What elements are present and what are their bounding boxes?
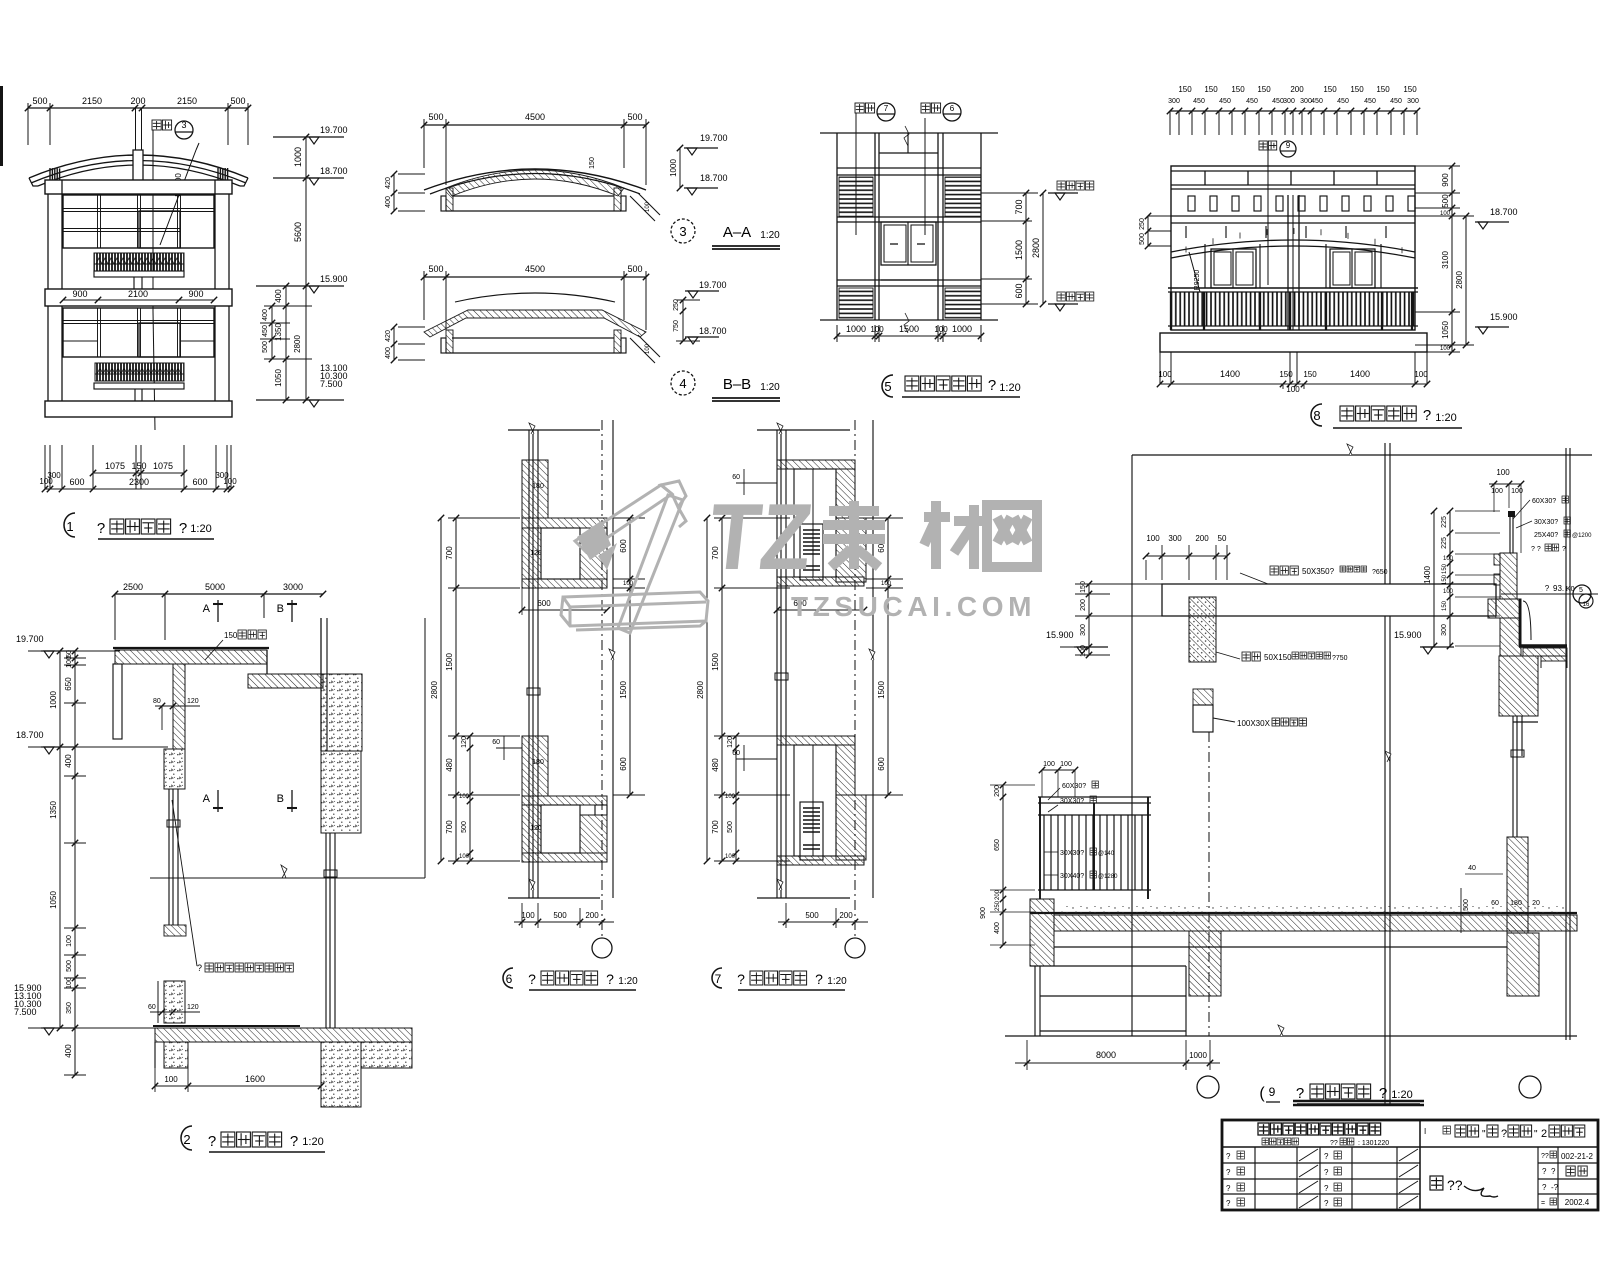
svg-text:4: 4 <box>679 376 686 391</box>
svg-text:1050: 1050 <box>274 369 283 387</box>
svg-text:1:20: 1:20 <box>760 382 780 393</box>
svg-text:1350: 1350 <box>49 801 58 819</box>
svg-text:?: ? <box>1296 1085 1304 1102</box>
svg-text:?: ? <box>1551 1167 1556 1176</box>
svg-text:200: 200 <box>1080 599 1087 611</box>
svg-text:600: 600 <box>69 477 84 487</box>
svg-text:18.700: 18.700 <box>699 326 727 336</box>
svg-text:-?: -? <box>1551 1183 1559 1192</box>
svg-text:50X150: 50X150 <box>1264 653 1292 662</box>
svg-text:300: 300 <box>1168 98 1180 105</box>
svg-text:650: 650 <box>64 677 73 691</box>
svg-text:6: 6 <box>950 104 955 113</box>
svg-text:1:20: 1:20 <box>1391 1089 1412 1101</box>
svg-text:2800: 2800 <box>430 681 439 699</box>
svg-text:650: 650 <box>994 839 1001 851</box>
svg-text:3000: 3000 <box>283 582 303 592</box>
svg-text:500: 500 <box>627 112 642 122</box>
svg-text:500: 500 <box>32 96 47 106</box>
svg-text:9: 9 <box>1269 1085 1276 1099</box>
svg-text:1:20: 1:20 <box>302 1136 323 1148</box>
svg-text:?: ? <box>1542 1183 1547 1192</box>
svg-text:60: 60 <box>1491 900 1499 907</box>
svg-text:300: 300 <box>1283 98 1295 105</box>
svg-text:120: 120 <box>187 698 199 705</box>
svg-text:3: 3 <box>181 120 186 130</box>
svg-text:3: 3 <box>679 224 686 239</box>
svg-text:?: ? <box>737 971 745 987</box>
svg-text:@140: @140 <box>1098 851 1115 857</box>
svg-text:1:20: 1:20 <box>190 523 211 535</box>
svg-text:100: 100 <box>1414 370 1428 379</box>
svg-text:?: ? <box>1324 1184 1329 1193</box>
svg-text:?: ? <box>1226 1168 1231 1177</box>
svg-text:: 1301220: : 1301220 <box>1358 1140 1389 1147</box>
svg-text:8: 8 <box>1313 408 1320 423</box>
svg-text:225: 225 <box>1441 516 1448 528</box>
svg-text:?: ? <box>179 520 187 537</box>
svg-text:200: 200 <box>839 911 853 920</box>
svg-text:400: 400 <box>64 1044 73 1058</box>
svg-text:1:20: 1:20 <box>760 230 780 241</box>
svg-text:1500: 1500 <box>445 653 454 671</box>
svg-text:60: 60 <box>732 750 740 757</box>
svg-text:300: 300 <box>1080 624 1087 636</box>
svg-text:100: 100 <box>521 911 535 920</box>
svg-text:250: 250 <box>995 900 1001 911</box>
svg-text:B–B: B–B <box>723 376 751 393</box>
svg-text:500: 500 <box>553 911 567 920</box>
svg-text:400: 400 <box>385 347 392 359</box>
svg-text:500: 500 <box>627 264 642 274</box>
svg-text:B: B <box>277 603 284 615</box>
svg-text:600: 600 <box>192 477 207 487</box>
svg-text:100: 100 <box>66 977 73 989</box>
svg-text:60: 60 <box>732 474 740 481</box>
svg-text:120: 120 <box>187 1004 199 1011</box>
svg-text:5: 5 <box>1579 587 1583 594</box>
svg-text:B: B <box>277 793 284 805</box>
svg-text:18.700: 18.700 <box>700 173 728 183</box>
svg-text:?: ? <box>528 971 536 987</box>
svg-text:450: 450 <box>1364 98 1376 105</box>
svg-text:1350: 1350 <box>274 323 283 341</box>
svg-text:7.500: 7.500 <box>320 379 343 389</box>
svg-text:150: 150 <box>1231 85 1245 94</box>
svg-text:7: 7 <box>715 972 722 986</box>
svg-text:100: 100 <box>870 325 884 334</box>
svg-text:350: 350 <box>66 1002 73 1014</box>
svg-text:7.500: 7.500 <box>14 1007 37 1017</box>
svg-text:?: ? <box>1501 1128 1507 1140</box>
svg-text:1400: 1400 <box>1220 369 1240 379</box>
svg-text:?: ? <box>1226 1184 1231 1193</box>
svg-text:180: 180 <box>532 483 544 490</box>
svg-text:1075: 1075 <box>105 461 125 471</box>
svg-text:150: 150 <box>1080 581 1087 593</box>
svg-text:150: 150 <box>1204 85 1218 94</box>
svg-text:?: ? <box>1324 1168 1329 1177</box>
svg-text:450: 450 <box>1246 98 1258 105</box>
svg-text:100: 100 <box>1146 534 1160 543</box>
svg-text:1500: 1500 <box>899 324 919 334</box>
svg-text:18.700: 18.700 <box>320 166 348 176</box>
svg-text:20: 20 <box>1532 900 1540 907</box>
svg-text:600: 600 <box>537 599 551 608</box>
svg-text:??: ?? <box>1447 1177 1463 1193</box>
svg-text:1000: 1000 <box>1189 1051 1207 1060</box>
svg-text:2800: 2800 <box>696 681 705 699</box>
svg-text:?: ? <box>1226 1199 1231 1208</box>
svg-text:TZSUCAI.COM: TZSUCAI.COM <box>791 591 1036 622</box>
svg-text:300: 300 <box>1441 624 1448 636</box>
svg-text:002-21-2: 002-21-2 <box>1561 1152 1594 1161</box>
svg-text:?: ? <box>988 377 996 394</box>
svg-text:150: 150 <box>1350 85 1364 94</box>
svg-text:": " <box>1534 1129 1538 1140</box>
svg-text:150: 150 <box>1442 563 1448 574</box>
svg-text:150: 150 <box>1178 85 1192 94</box>
svg-text:500: 500 <box>66 960 73 972</box>
svg-text:?: ? <box>1542 1167 1547 1176</box>
svg-text:8000: 8000 <box>1096 1050 1116 1060</box>
svg-text:600: 600 <box>1014 283 1024 298</box>
svg-text:2800: 2800 <box>1455 271 1464 289</box>
svg-text:120: 120 <box>727 736 734 748</box>
svg-text:1:20: 1:20 <box>618 976 638 987</box>
svg-text:100: 100 <box>1440 346 1451 352</box>
svg-text:?750: ?750 <box>1332 655 1348 662</box>
svg-text:400: 400 <box>274 289 283 303</box>
svg-text:600: 600 <box>877 757 886 771</box>
svg-text:700: 700 <box>445 820 454 834</box>
svg-text:A: A <box>203 603 211 615</box>
svg-text:300: 300 <box>1407 98 1419 105</box>
svg-text:150: 150 <box>1257 85 1271 94</box>
svg-text:4500: 4500 <box>525 112 545 122</box>
svg-text:450: 450 <box>1337 98 1349 105</box>
svg-text:750: 750 <box>673 320 680 332</box>
svg-text:480: 480 <box>711 758 720 772</box>
svg-text:1050: 1050 <box>49 891 58 909</box>
svg-text:18.700: 18.700 <box>16 730 44 740</box>
svg-text:1400: 1400 <box>1423 566 1432 584</box>
svg-text:150: 150 <box>1376 85 1390 94</box>
svg-text:200: 200 <box>995 889 1001 900</box>
svg-text:=: = <box>1541 1200 1545 1207</box>
svg-text:700: 700 <box>711 820 720 834</box>
svg-text:?: ? <box>1562 546 1566 553</box>
svg-text:500: 500 <box>1139 233 1146 245</box>
svg-text:100: 100 <box>725 854 736 860</box>
svg-text:100X30X: 100X30X <box>1237 719 1271 728</box>
svg-text:900: 900 <box>1441 173 1450 187</box>
svg-text:15.900: 15.900 <box>1394 630 1422 640</box>
svg-text:2500: 2500 <box>123 582 143 592</box>
svg-text:1000: 1000 <box>293 147 303 167</box>
svg-text:7: 7 <box>884 104 889 113</box>
svg-text:400: 400 <box>994 922 1001 934</box>
svg-text:50X350?: 50X350? <box>1302 567 1335 576</box>
svg-text:150: 150 <box>1323 85 1337 94</box>
svg-text:500: 500 <box>805 911 819 920</box>
svg-text:A: A <box>203 793 211 805</box>
svg-text:1:20: 1:20 <box>1435 412 1456 424</box>
svg-text:100: 100 <box>1060 761 1072 768</box>
svg-text:200: 200 <box>994 785 1001 797</box>
svg-text:? ?: ? ? <box>1531 546 1541 553</box>
svg-text:150: 150 <box>131 461 146 471</box>
svg-text:200: 200 <box>130 96 145 106</box>
svg-text:400: 400 <box>64 754 73 768</box>
svg-text:500: 500 <box>461 821 468 833</box>
svg-text:1500: 1500 <box>711 653 720 671</box>
svg-text:500: 500 <box>230 96 245 106</box>
svg-text:15.900: 15.900 <box>1046 630 1074 640</box>
svg-text:100: 100 <box>881 581 892 587</box>
svg-text:100: 100 <box>1043 761 1055 768</box>
svg-text:30X30?: 30X30? <box>1060 850 1084 857</box>
svg-text:1: 1 <box>66 519 73 534</box>
svg-text:2150: 2150 <box>82 96 102 106</box>
svg-text:?: ? <box>1226 1152 1231 1161</box>
svg-text:30X30?: 30X30? <box>1060 798 1084 805</box>
svg-text:100: 100 <box>1286 385 1300 394</box>
svg-text:450: 450 <box>1390 98 1402 105</box>
svg-text:120: 120 <box>530 550 542 557</box>
svg-text:450: 450 <box>1219 98 1231 105</box>
svg-text:180: 180 <box>1510 900 1522 907</box>
svg-text:200: 200 <box>585 911 599 920</box>
svg-text:9: 9 <box>1286 141 1291 150</box>
svg-text:1600: 1600 <box>245 1074 265 1084</box>
svg-text:500: 500 <box>428 112 443 122</box>
svg-text:100: 100 <box>934 325 948 334</box>
svg-text:600: 600 <box>619 539 628 553</box>
svg-text:400: 400 <box>385 196 392 208</box>
svg-text:250: 250 <box>1139 218 1146 230</box>
svg-text:?: ? <box>197 963 202 973</box>
svg-text:1050: 1050 <box>1441 321 1450 339</box>
svg-text:15.900: 15.900 <box>1490 312 1518 322</box>
svg-text:1:20: 1:20 <box>999 382 1020 394</box>
svg-text:180: 180 <box>532 759 544 766</box>
svg-text:(: ( <box>1259 1085 1265 1102</box>
svg-text:A–A: A–A <box>723 224 751 241</box>
svg-text:1000: 1000 <box>952 324 972 334</box>
svg-text:450: 450 <box>1311 98 1323 105</box>
svg-text:700: 700 <box>1014 199 1024 214</box>
svg-text:500: 500 <box>428 264 443 274</box>
svg-text:150: 150 <box>224 631 238 640</box>
svg-text:400: 400 <box>262 309 269 321</box>
svg-text:150: 150 <box>1442 600 1448 611</box>
svg-text:18.700: 18.700 <box>1490 207 1518 217</box>
svg-text:30X30?: 30X30? <box>1534 519 1558 526</box>
svg-text:4500: 4500 <box>525 264 545 274</box>
svg-text:?: ? <box>1545 584 1550 593</box>
svg-text:100: 100 <box>1443 589 1454 595</box>
svg-text:2150: 2150 <box>177 96 197 106</box>
svg-text:700: 700 <box>445 546 454 560</box>
svg-text:900: 900 <box>188 289 203 299</box>
svg-text:500: 500 <box>262 341 269 353</box>
svg-text:6: 6 <box>506 972 513 986</box>
svg-text:5600: 5600 <box>293 222 303 242</box>
svg-text:5000: 5000 <box>205 582 225 592</box>
svg-text:100: 100 <box>1158 370 1172 379</box>
svg-text:2: 2 <box>183 1132 190 1147</box>
svg-text:300: 300 <box>1168 534 1182 543</box>
svg-text:100: 100 <box>459 854 470 860</box>
svg-text:1000: 1000 <box>846 324 866 334</box>
svg-text:420: 420 <box>385 330 392 342</box>
svg-text:100: 100 <box>164 1075 178 1084</box>
svg-text:150: 150 <box>589 157 596 169</box>
svg-text:450: 450 <box>262 325 269 337</box>
svg-text:2800: 2800 <box>1031 238 1041 258</box>
svg-text:1075: 1075 <box>153 461 173 471</box>
svg-text:100: 100 <box>1496 468 1510 477</box>
svg-text:100: 100 <box>1443 556 1454 562</box>
svg-text:250: 250 <box>673 299 680 311</box>
svg-text:?: ? <box>1423 407 1431 424</box>
svg-text:420: 420 <box>385 177 392 189</box>
svg-text:3100: 3100 <box>1441 251 1450 269</box>
svg-text:100: 100 <box>645 201 651 212</box>
svg-text:@1280: @1280 <box>1098 874 1118 880</box>
svg-text:19.700: 19.700 <box>699 280 727 290</box>
svg-text:150: 150 <box>1403 85 1417 94</box>
svg-text:I: I <box>1424 1127 1426 1136</box>
svg-text:60X30?: 60X30? <box>1532 498 1556 505</box>
svg-text:93.: 93. <box>1553 584 1564 593</box>
svg-text:1500: 1500 <box>877 681 886 699</box>
svg-text:480: 480 <box>445 758 454 772</box>
svg-text:2100: 2100 <box>128 289 148 299</box>
svg-text:1500: 1500 <box>619 681 628 699</box>
svg-text:?: ? <box>815 971 823 987</box>
svg-text:300: 300 <box>47 471 61 480</box>
svg-text:19.700: 19.700 <box>700 133 728 143</box>
svg-text:600: 600 <box>619 757 628 771</box>
svg-text:50: 50 <box>1218 534 1227 543</box>
svg-text:?650: ?650 <box>1372 569 1388 576</box>
svg-text:150: 150 <box>1279 370 1293 379</box>
svg-text:?: ? <box>1324 1152 1329 1161</box>
svg-text:500: 500 <box>1441 194 1450 208</box>
svg-text:2: 2 <box>1541 1128 1547 1140</box>
svg-text:120: 120 <box>530 825 542 832</box>
svg-text:120: 120 <box>461 736 468 748</box>
svg-text:200: 200 <box>1290 85 1304 94</box>
svg-text:15.900: 15.900 <box>320 274 348 284</box>
svg-text:100: 100 <box>623 581 634 587</box>
svg-text:150: 150 <box>1442 574 1448 585</box>
svg-text:60X30?: 60X30? <box>1062 783 1086 790</box>
svg-text:100: 100 <box>645 343 651 354</box>
svg-text:2800: 2800 <box>293 335 302 353</box>
svg-text:?: ? <box>290 1133 298 1150</box>
svg-text:100: 100 <box>1491 488 1503 495</box>
svg-text:1000: 1000 <box>669 159 678 177</box>
svg-text:225: 225 <box>1441 537 1448 549</box>
svg-text:?: ? <box>1324 1199 1329 1208</box>
svg-text:TZ: TZ <box>704 484 817 589</box>
svg-text:100: 100 <box>66 935 73 947</box>
svg-text:25X40?: 25X40? <box>1534 532 1558 539</box>
svg-text:?: ? <box>208 1133 216 1150</box>
svg-text:19.700: 19.700 <box>16 634 44 644</box>
svg-text:150: 150 <box>1303 370 1317 379</box>
svg-text:@1200: @1200 <box>1572 533 1592 539</box>
svg-text:2300: 2300 <box>129 477 149 487</box>
svg-text:30X40?: 30X40? <box>1060 873 1084 880</box>
svg-text:?: ? <box>1379 1085 1387 1102</box>
svg-text:80: 80 <box>153 698 161 705</box>
svg-text:200: 200 <box>1195 534 1209 543</box>
svg-text:900: 900 <box>980 907 987 919</box>
svg-text:19.700: 19.700 <box>320 125 348 135</box>
svg-text:5: 5 <box>884 379 891 394</box>
svg-text:2002.4: 2002.4 <box>1565 1198 1590 1207</box>
svg-text:500: 500 <box>727 821 734 833</box>
svg-text:60: 60 <box>492 739 500 746</box>
svg-text:?: ? <box>97 520 105 537</box>
svg-text:900: 900 <box>72 289 87 299</box>
svg-text:??: ?? <box>1330 1140 1338 1147</box>
svg-text:450: 450 <box>1193 98 1205 105</box>
svg-text:??: ?? <box>1541 1153 1549 1160</box>
svg-text:40: 40 <box>1468 865 1476 872</box>
svg-text:": " <box>1482 1129 1486 1140</box>
svg-text:1500: 1500 <box>1014 240 1024 260</box>
svg-text:1000: 1000 <box>49 691 58 709</box>
svg-text:?: ? <box>606 971 614 987</box>
svg-text:16: 16 <box>1583 602 1590 608</box>
svg-text:R9250: R9250 <box>1194 270 1201 291</box>
svg-text:300: 300 <box>215 471 229 480</box>
svg-text:1400: 1400 <box>1350 369 1370 379</box>
svg-text:60: 60 <box>148 1004 156 1011</box>
svg-text:1:20: 1:20 <box>827 976 847 987</box>
